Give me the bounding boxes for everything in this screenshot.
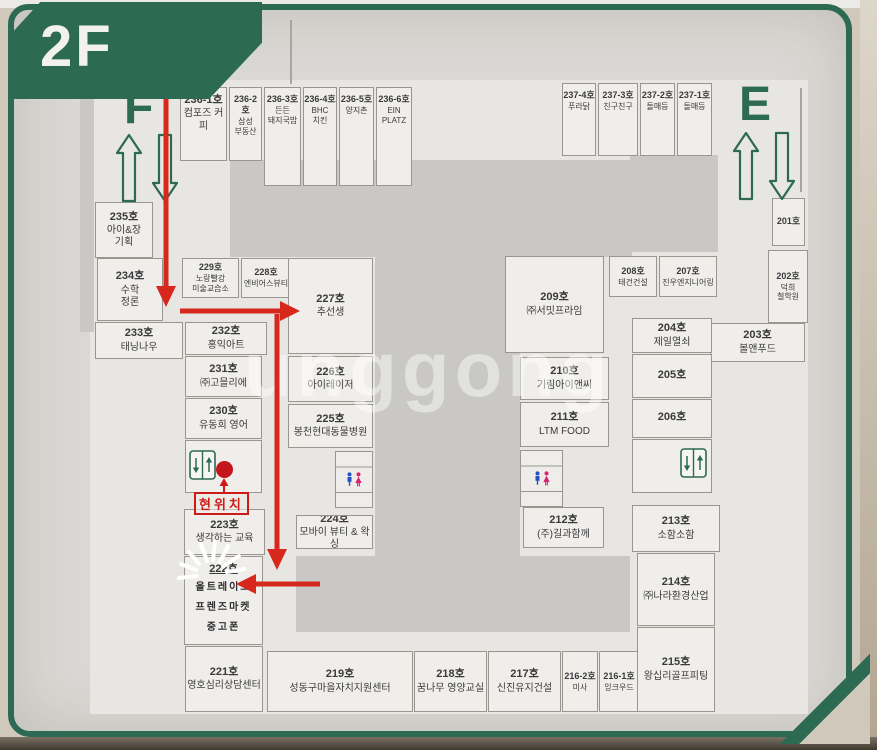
restroom-area-right: [520, 450, 563, 507]
unit-name: 모바이 뷰티 & 왁싱: [297, 527, 372, 549]
unit-name: 잉크우드: [604, 683, 633, 693]
unit-room-number: 235호: [110, 211, 138, 224]
unit-223호: 223호생각하는 교육: [184, 509, 265, 555]
unit-name: 홍익아트: [208, 340, 245, 352]
unit-room-number: 216-1호: [603, 671, 634, 682]
unit-204호: 204호제일열쇠: [632, 318, 712, 353]
unit-218호: 218호꿈나무 영양교실: [414, 651, 487, 712]
unit-room-number: 236-6호: [378, 94, 409, 105]
unit-room-number: 201호: [777, 216, 800, 227]
unit-225호: 225호봉천현대동물병원: [288, 404, 373, 448]
unit-224호: 224호모바이 뷰티 & 왁싱: [296, 515, 373, 549]
unit-210호: 210호기림아이앤씨: [520, 357, 609, 400]
unit-name: 볼앤푸드: [739, 344, 776, 356]
unit-room-number: 208호: [621, 266, 644, 277]
unit-room-number: 237-2호: [642, 90, 673, 101]
unit-room-number: 223호: [210, 519, 238, 532]
wall-line-right: [800, 88, 802, 192]
unit-236-6호: 236-6호EIN PLATZ: [376, 87, 412, 186]
current-location-label: 현위치: [194, 492, 249, 515]
unit-212호: 212호(주)길과함께: [523, 507, 604, 548]
unit-205호: 205호: [632, 354, 712, 398]
unit-room-number: 222호: [209, 563, 237, 576]
unit-206호: 206호: [632, 399, 712, 438]
unit-name: 봉천현대동물병원: [294, 427, 368, 439]
unit-236-2호: 236-2호삼성 부동산: [229, 87, 262, 161]
unit-room-number: 204호: [658, 322, 686, 335]
unit-217호: 217호신진유지건설: [488, 651, 561, 712]
unit-room-number: 230호: [209, 405, 237, 418]
unit-235호: 235호아이&장 기획: [95, 202, 153, 258]
unit-236-5호: 236-5호양지촌: [339, 87, 374, 186]
unit-room-number: 237-4호: [563, 90, 594, 101]
unit-214호: 214호㈜나라환경산업: [637, 553, 715, 626]
unit-name: 노랑빨강 미술교습소: [192, 274, 229, 294]
restroom-icon: [344, 472, 364, 487]
unit-name: BHC 치킨: [312, 106, 329, 126]
unit-room-number: 216-2호: [564, 671, 595, 682]
unit-211호: 211호LTM FOOD: [520, 402, 609, 447]
unit-name: ㈜나라환경산업: [643, 591, 708, 603]
unit-room-number: 211호: [551, 411, 579, 424]
unit-room-number: 228호: [254, 267, 277, 278]
unit-room-number: 225호: [316, 413, 344, 426]
unit-231호: 231호㈜고믈리에: [185, 356, 262, 397]
unit-name: 태닝나우: [121, 342, 158, 354]
wall-line-top: [290, 20, 292, 84]
unit-name: LTM FOOD: [539, 426, 590, 438]
unit-221호: 221호영호심리상담센터: [185, 646, 263, 712]
elevator-icon: [680, 448, 707, 478]
unit-room-number: 213호: [662, 515, 690, 528]
unit-230호: 230호유동희 영어: [185, 398, 262, 439]
unit-name: EIN PLATZ: [382, 106, 406, 126]
unit-room-number: 227호: [316, 293, 344, 306]
unit-name: 삼성 부동산: [234, 117, 256, 137]
unit-237-2호: 237-2호돌매등: [640, 83, 675, 156]
unit-229호: 229호노랑빨강 미술교습소: [182, 258, 239, 298]
unit-room-number: 231호: [209, 363, 237, 376]
unit-226호: 226호아이레이저: [288, 356, 373, 402]
unit-room-number: 207호: [676, 266, 699, 277]
unit-name: 컴포즈 커피: [181, 108, 226, 132]
unit-203호: 203호볼앤푸드: [710, 323, 805, 362]
floor-badge-label: 2F: [40, 18, 114, 76]
unit-name: 아이레이저: [308, 380, 354, 392]
unit-name: 아이&장 기획: [107, 225, 141, 249]
unit-237-3호: 237-3호친구친구: [598, 83, 638, 156]
elevator-icon: [189, 450, 216, 480]
unit-room-number: 202호: [776, 271, 799, 282]
unit-name: 덕희 철학원: [777, 283, 799, 303]
unit-237-4호: 237-4호푸라닭: [562, 83, 596, 156]
unit-room-number: 215호: [662, 656, 690, 669]
unit-name: 성동구마을자치지원센터: [289, 683, 390, 695]
unit-236-4호: 236-4호BHC 치킨: [303, 87, 337, 186]
photo-edge-bottom: [0, 737, 877, 750]
unit-name: 영호심리상담센터: [187, 680, 261, 692]
unit-name: ㈜고믈리에: [200, 378, 247, 390]
unit-room-number: 229호: [199, 262, 222, 273]
unit-room-number: 236-2호: [230, 94, 261, 116]
unit-room-number: 214호: [662, 576, 690, 589]
unit-213호: 213호소함소함: [632, 505, 720, 552]
unit-name: ㈜서밋프라임: [527, 306, 583, 318]
unit-name: 든든 돼지국밥: [268, 106, 297, 126]
unit-name: 돌매등: [683, 102, 705, 112]
unit-name: 진우엔지니어링: [662, 278, 714, 288]
unit-name: 왕십리골프피팅: [644, 671, 708, 683]
unit-room-number: 232호: [212, 325, 240, 338]
unit-name: 푸라닭: [568, 102, 590, 112]
unit-name: 꿈나무 영양교실: [417, 683, 484, 695]
unit-room-number: 221호: [210, 666, 238, 679]
unit-room-number: 237-3호: [602, 90, 633, 101]
unit-name: 기림아이앤씨: [537, 380, 592, 392]
unit-room-number: 217호: [510, 668, 538, 681]
unit-room-number: 212호: [549, 514, 577, 527]
unit-room-number: 203호: [743, 329, 771, 342]
restroom-icon: [532, 471, 552, 486]
unit-room-number: 236-3호: [267, 94, 298, 105]
stairwell-e-label: E: [739, 81, 771, 129]
unit-room-number: 224호: [320, 515, 348, 526]
unit-name: 유동희 영어: [199, 420, 248, 432]
unit-room-number: 226호: [316, 366, 344, 379]
unit-name: 양지촌: [345, 106, 367, 116]
unit-room-number: 218호: [436, 668, 464, 681]
unit-236-3호: 236-3호든든 돼지국밥: [264, 87, 301, 186]
unit-name: 신진유지건설: [497, 683, 552, 695]
unit-name: 소함소함: [658, 530, 695, 542]
unit-name: 미사: [573, 683, 588, 693]
unit-room-number: 233호: [125, 327, 153, 340]
unit-room-number: 219호: [326, 668, 354, 681]
unit-room-number: 205호: [658, 369, 686, 382]
unit-201호: 201호: [772, 198, 805, 246]
updown-arrows-icon: [733, 130, 795, 202]
unit-room-number: 236-5호: [341, 94, 372, 105]
unit-room-number: 236-4호: [304, 94, 335, 105]
current-location-dot: [216, 461, 233, 478]
unit-202호: 202호덕희 철학원: [768, 250, 808, 323]
unit-name: 돌매등: [646, 102, 668, 112]
unit-room-number: 210호: [550, 365, 578, 378]
unit-209호: 209호㈜서밋프라임: [505, 256, 604, 353]
unit-237-1호: 237-1호돌매등: [677, 83, 712, 156]
unit-207호: 207호진우엔지니어링: [659, 256, 717, 297]
corridor-void-top-right: [630, 155, 718, 252]
unit-216-2호: 216-2호미사: [562, 651, 598, 712]
unit-name: 생각하는 교육: [196, 533, 254, 545]
unit-name: 태건건설: [618, 278, 647, 288]
unit-228호: 228호엔비어스뷰티: [241, 258, 291, 298]
unit-room-number: 209호: [540, 291, 568, 304]
photo-edge-right: [860, 0, 877, 750]
unit-219호: 219호성동구마을자치지원센터: [267, 651, 413, 712]
unit-222호: 222호올트레이드 프렌즈마켓 중고폰: [184, 556, 263, 645]
unit-233호: 233호태닝나우: [95, 322, 183, 359]
unit-name: 추선생: [317, 307, 345, 319]
unit-215호: 215호왕십리골프피팅: [637, 627, 715, 712]
unit-232호: 232호홍익아트: [185, 322, 267, 355]
unit-name: 올트레이드 프렌즈마켓 중고폰: [196, 578, 252, 638]
corridor-void-bottom: [296, 556, 630, 632]
unit-name: 친구친구: [603, 102, 632, 112]
unit-room-number: 237-1호: [679, 90, 710, 101]
unit-room-number: 234호: [116, 270, 144, 283]
restroom-area-left: [335, 451, 373, 508]
unit-227호: 227호추선생: [288, 258, 373, 354]
unit-name: 제일열쇠: [654, 337, 691, 349]
unit-234호: 234호수학 정론: [97, 258, 163, 321]
unit-name: 수학 정론: [121, 285, 139, 309]
unit-208호: 208호태건건설: [609, 256, 657, 297]
unit-name: 엔비어스뷰티: [244, 279, 288, 289]
updown-arrows-icon: [116, 132, 178, 204]
corridor-void-center: [375, 257, 520, 556]
unit-216-1호: 216-1호잉크우드: [599, 651, 639, 712]
unit-room-number: 206호: [658, 411, 686, 424]
unit-name: (주)길과함께: [537, 529, 590, 541]
wall-strip-left: [80, 90, 94, 332]
